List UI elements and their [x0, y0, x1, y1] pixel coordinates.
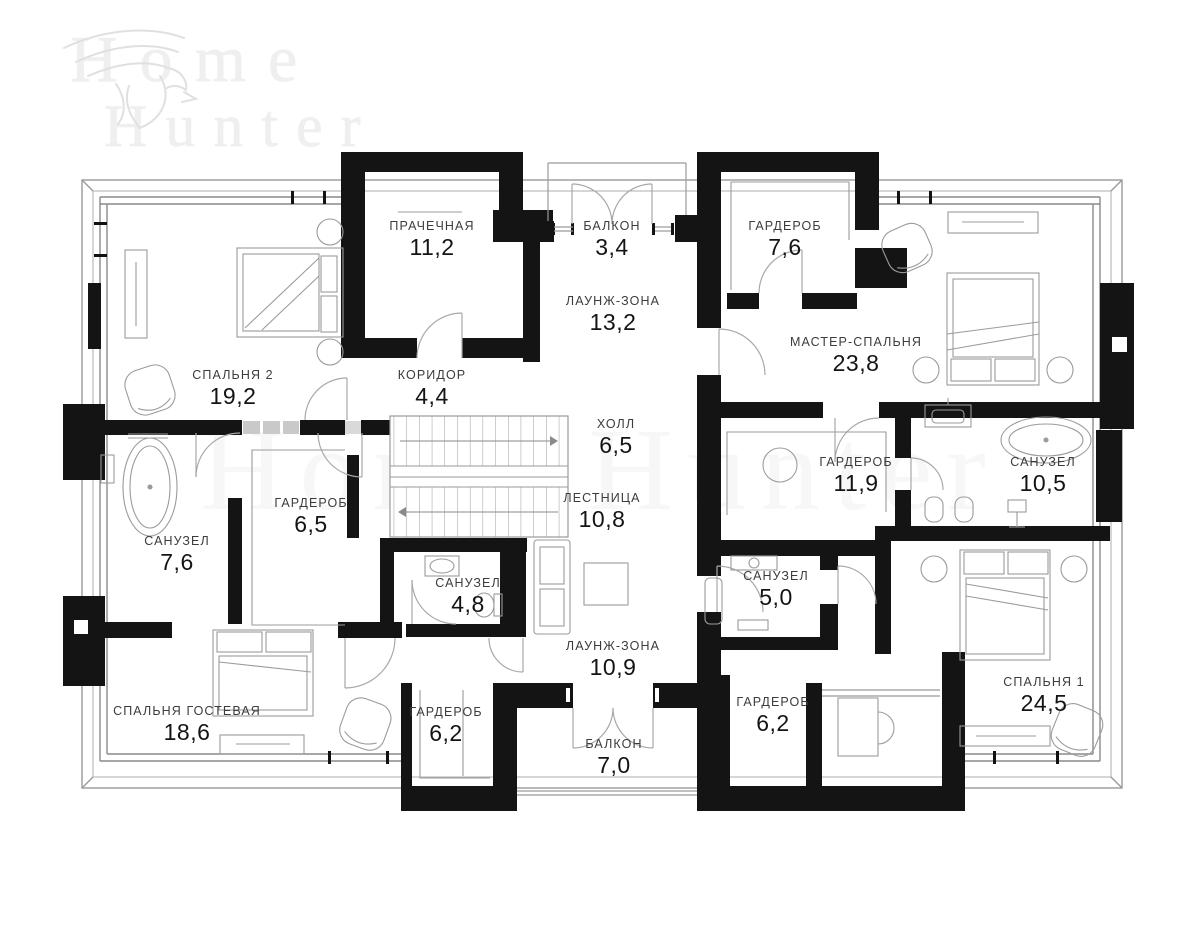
room-label: МАСТЕР-СПАЛЬНЯ23,8: [790, 335, 922, 377]
room-area: 5,0: [743, 584, 809, 611]
room-name: ГАРДЕРОБ: [409, 705, 482, 719]
room-area: 7,6: [144, 549, 210, 576]
dresser-icon: [960, 726, 1050, 746]
room-area: 23,8: [790, 350, 922, 377]
room-label: САНУЗЕЛ7,6: [144, 534, 210, 576]
room-area: 24,5: [1003, 690, 1084, 717]
plan-frame: [82, 180, 1122, 788]
room-name: САНУЗЕЛ: [1010, 455, 1076, 469]
room-area: 4,8: [435, 591, 501, 618]
room-area: 3,4: [583, 234, 640, 261]
ottoman-icon: [763, 448, 797, 482]
room-label: ГАРДЕРОБ6,2: [409, 705, 482, 747]
staircase-icon: [390, 416, 568, 537]
room-area: 7,6: [748, 234, 821, 261]
room-label: САНУЗЕЛ10,5: [1010, 455, 1076, 497]
room-area: 7,0: [585, 752, 642, 779]
room-name: САНУЗЕЛ: [743, 569, 809, 583]
nightstand-icon: [317, 339, 343, 365]
room-name: ГАРДЕРОБ: [736, 695, 809, 709]
room-label: САНУЗЕЛ5,0: [743, 569, 809, 611]
room-label: ПРАЧЕЧНАЯ11,2: [389, 219, 474, 261]
table-icon: [584, 563, 628, 605]
room-label: ЛАУНЖ-ЗОНА13,2: [566, 294, 660, 336]
room-label: ЛЕСТНИЦА10,8: [563, 491, 640, 533]
room-area: 11,2: [389, 234, 474, 261]
room-name: СПАЛЬНЯ ГОСТЕВАЯ: [113, 704, 261, 718]
nightstand-icon: [921, 556, 947, 582]
room-area: 6,2: [736, 710, 809, 737]
room-label: САНУЗЕЛ4,8: [435, 576, 501, 618]
room-area: 18,6: [113, 719, 261, 746]
sink-icon: [425, 556, 459, 576]
room-label: ХОЛЛ6,5: [597, 417, 635, 459]
room-label: СПАЛЬНЯ 124,5: [1003, 675, 1084, 717]
sofa-icon: [534, 540, 570, 634]
room-name: СПАЛЬНЯ 2: [192, 368, 273, 382]
room-name: САНУЗЕЛ: [435, 576, 501, 590]
bench-icon: [738, 620, 768, 630]
bed-icon: [237, 248, 343, 337]
room-area: 13,2: [566, 309, 660, 336]
room-area: 10,9: [566, 654, 660, 681]
room-area: 11,9: [819, 470, 892, 497]
room-name: САНУЗЕЛ: [144, 534, 210, 548]
dresser-icon: [948, 212, 1038, 233]
room-name: ЛАУНЖ-ЗОНА: [566, 639, 660, 653]
bidet-icon: [955, 497, 973, 522]
room-label: КОРИДОР4,4: [398, 368, 466, 410]
room-name: ЛЕСТНИЦА: [563, 491, 640, 505]
shower-icon: [1008, 500, 1026, 527]
room-area: 6,2: [409, 720, 482, 747]
room-label: ЛАУНЖ-ЗОНА10,9: [566, 639, 660, 681]
room-name: ГАРДЕРОБ: [748, 219, 821, 233]
room-name: ХОЛЛ: [597, 417, 635, 431]
desk-icon: [838, 698, 894, 756]
nightstand-icon: [1047, 357, 1073, 383]
room-label: СПАЛЬНЯ 219,2: [192, 368, 273, 410]
room-label: ГАРДЕРОБ7,6: [748, 219, 821, 261]
room-area: 6,5: [274, 511, 347, 538]
room-name: ГАРДЕРОБ: [274, 496, 347, 510]
armchair-icon: [336, 694, 396, 755]
room-label: БАЛКОН7,0: [585, 737, 642, 779]
sink-icon: [731, 556, 777, 570]
room-name: ЛАУНЖ-ЗОНА: [566, 294, 660, 308]
armchair-icon: [121, 361, 179, 419]
room-name: СПАЛЬНЯ 1: [1003, 675, 1084, 689]
room-area: 10,8: [563, 506, 640, 533]
room-area: 4,4: [398, 383, 466, 410]
room-name: КОРИДОР: [398, 368, 466, 382]
room-area: 10,5: [1010, 470, 1076, 497]
room-label: ГАРДЕРОБ6,5: [274, 496, 347, 538]
bed-icon: [947, 273, 1039, 385]
room-name: ПРАЧЕЧНАЯ: [389, 219, 474, 233]
room-label: ГАРДЕРОБ6,2: [736, 695, 809, 737]
nightstand-icon: [317, 219, 343, 245]
room-label: СПАЛЬНЯ ГОСТЕВАЯ18,6: [113, 704, 261, 746]
room-label: ГАРДЕРОБ11,9: [819, 455, 892, 497]
room-name: МАСТЕР-СПАЛЬНЯ: [790, 335, 922, 349]
bed-icon: [960, 550, 1050, 660]
room-area: 19,2: [192, 383, 273, 410]
room-area: 6,5: [597, 432, 635, 459]
room-name: БАЛКОН: [585, 737, 642, 751]
toilet-icon: [925, 497, 943, 522]
floor-plan-page: Home Hunter Home Hunter: [0, 0, 1200, 941]
nightstand-icon: [1061, 556, 1087, 582]
bathtub-icon: [123, 434, 177, 536]
room-name: ГАРДЕРОБ: [819, 455, 892, 469]
room-name: БАЛКОН: [583, 219, 640, 233]
room-label: БАЛКОН3,4: [583, 219, 640, 261]
